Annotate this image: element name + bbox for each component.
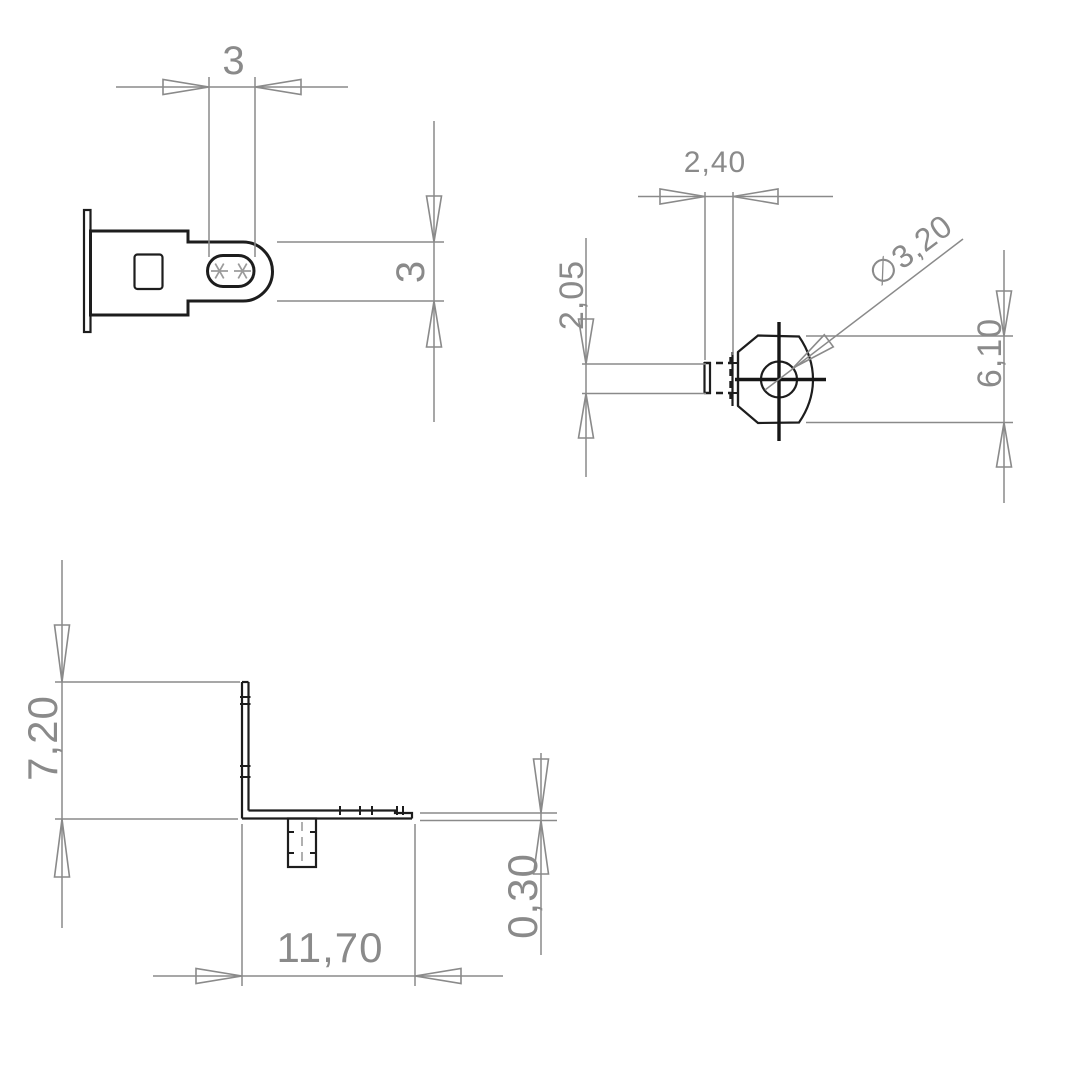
drawing-sheet: 3 3 [0, 0, 1080, 1080]
base-top-edge [249, 811, 413, 819]
dimension-slot-width: 3 [116, 39, 348, 257]
dimension-lug-width: 6,10 [806, 250, 1013, 503]
dimension-base-length: 11,70 [153, 824, 503, 986]
dim-label-stub-thickness: 2,05 [553, 260, 591, 330]
dimension-tab-width: 3 [277, 121, 444, 422]
dimension-hole-diameter: ∅3,20 [765, 207, 963, 390]
dimension-leg-height: 7,20 [19, 560, 240, 928]
view-lug-front: 2,40 2,05 ∅3,20 6,10 [553, 146, 1013, 503]
dim-label-tab-width: 3 [389, 260, 433, 283]
dim-label-material-thickness: 0,30 [499, 853, 546, 939]
dimension-material-thickness: 0,30 [420, 753, 557, 955]
dim-label-base-length: 11,70 [277, 924, 384, 971]
square-hole [135, 255, 163, 290]
weld-star-icon [234, 264, 251, 279]
dimension-stub-length: 2,40 [638, 146, 833, 360]
dimension-stub-thickness: 2,05 [553, 238, 706, 477]
technical-drawing-canvas: 3 3 [0, 0, 1080, 1080]
dim-label-stub-length: 2,40 [684, 146, 746, 179]
leader-arrow [793, 335, 833, 368]
dim-label-slot-width: 3 [222, 39, 245, 83]
dim-label-lug-width: 6,10 [971, 318, 1009, 388]
weld-star-icon [211, 264, 228, 279]
tab-body-outline [91, 231, 273, 315]
dim-label-leg-height: 7,20 [19, 695, 66, 781]
view-tab-top: 3 3 [84, 39, 444, 422]
view-bracket-side: 7,20 11,70 0,30 [19, 560, 557, 986]
dim-label-hole-diameter: ∅3,20 [862, 207, 960, 293]
